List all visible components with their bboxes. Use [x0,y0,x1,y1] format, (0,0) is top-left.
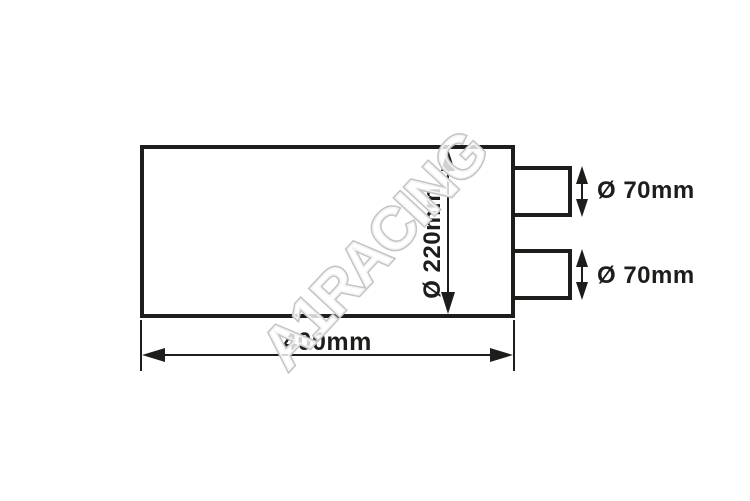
outlet-top-dimension-label: Ø 70mm [597,177,695,205]
body-diameter-dimension-label: Ø 220mm [419,193,447,293]
outlet-top-dimension-arrow [576,166,588,217]
length-dimension-label: 400mm [140,328,515,357]
outlet-pipe-bottom [515,249,572,300]
outlet-bottom-dimension-label: Ø 70mm [597,262,695,290]
outlet-bottom-dimension-arrow [576,249,588,300]
muffler-dimension-diagram: 400mm Ø 220mm Ø 70mm Ø 70mm A1RACING [0,0,750,501]
outlet-pipe-top [515,166,572,217]
muffler-body-outline [140,145,515,318]
